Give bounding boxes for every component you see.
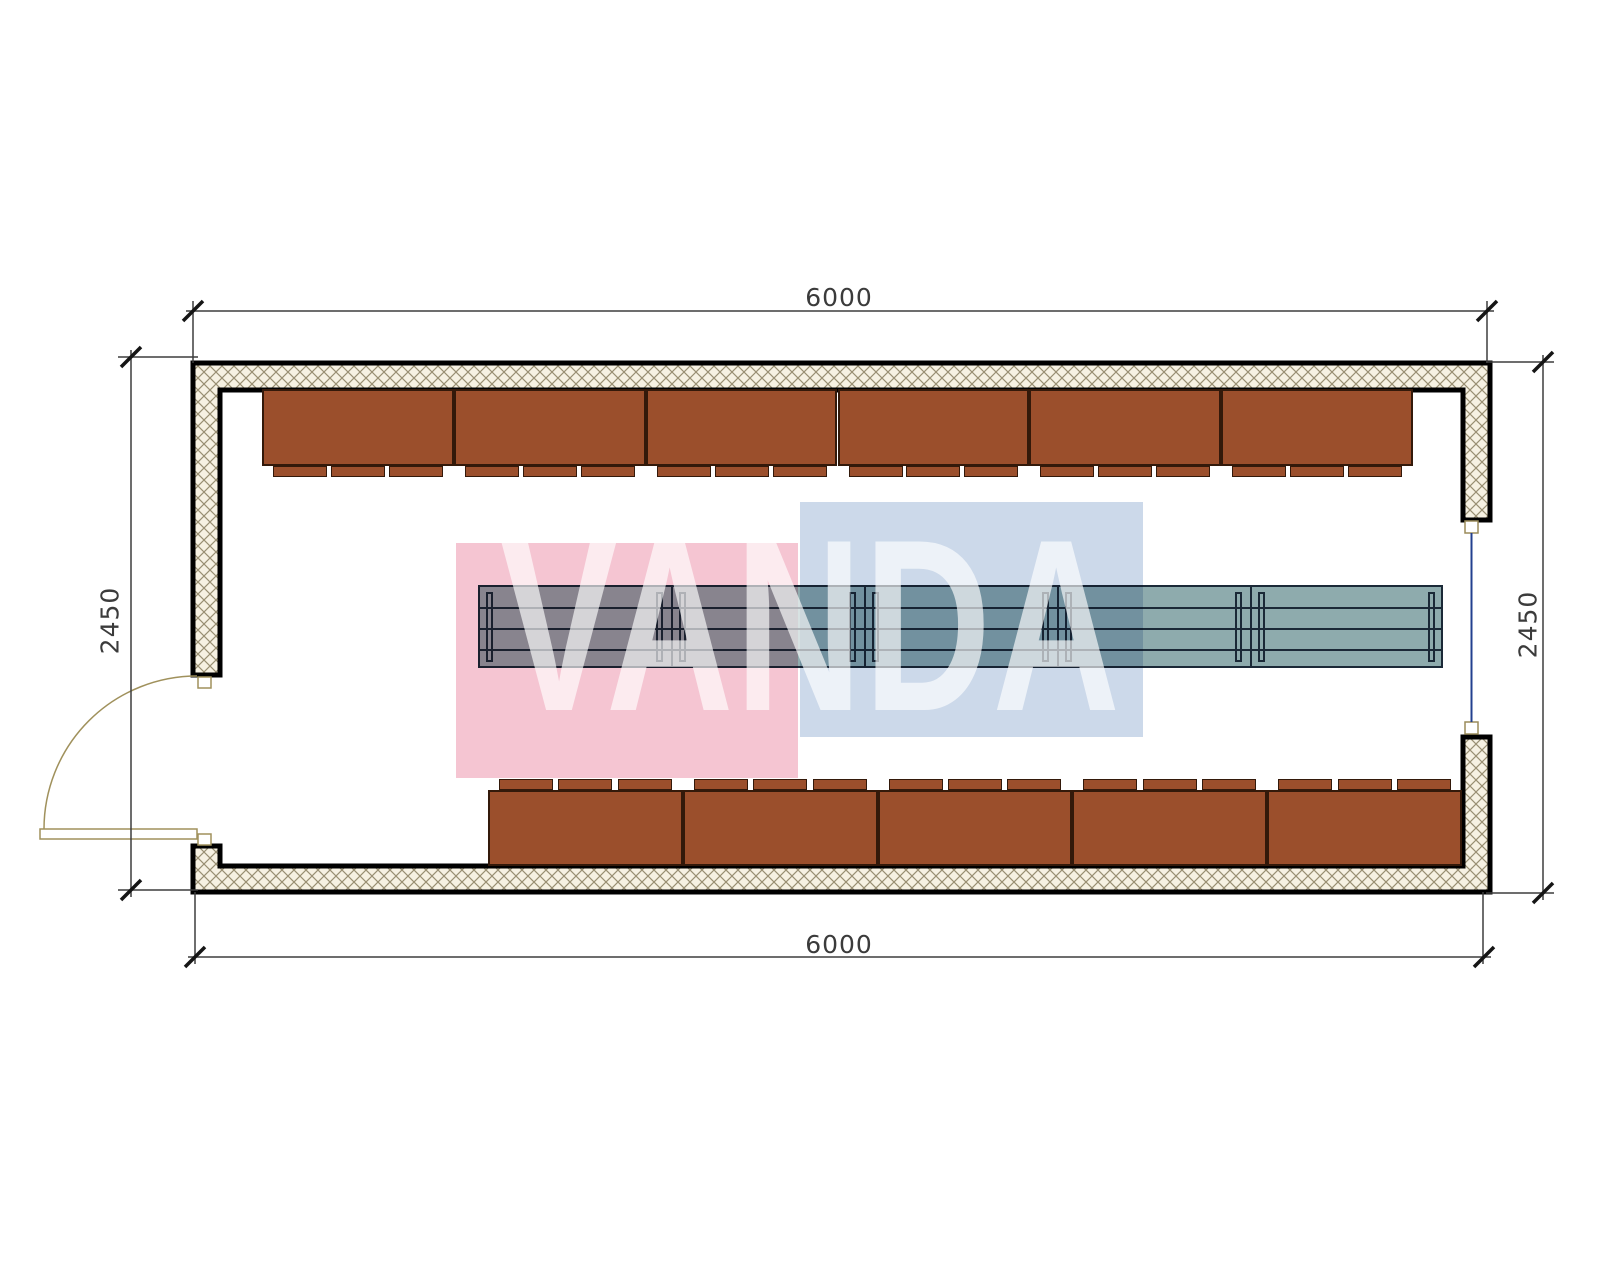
- window-jamb-top: [1465, 521, 1478, 533]
- bench-tab: [715, 466, 769, 477]
- bench-tab: [813, 779, 867, 790]
- bench-tab: [1278, 779, 1332, 790]
- bench-tab: [558, 779, 612, 790]
- table-module-divider: [1250, 585, 1252, 668]
- bench-tab: [465, 466, 519, 477]
- bench: [1072, 790, 1267, 866]
- bench-tab: [523, 466, 577, 477]
- table-leg: [1258, 592, 1265, 662]
- table-leg: [1428, 592, 1435, 662]
- bench-tab: [889, 779, 943, 790]
- bench-tab: [1232, 466, 1286, 477]
- bench-tab: [1156, 466, 1210, 477]
- bench-tab: [1338, 779, 1392, 790]
- bench-tab: [773, 466, 827, 477]
- bench-tab: [581, 466, 635, 477]
- floor-plan-canvas: 6000 6000 2450 2450 VANDA: [0, 0, 1600, 1280]
- bench-tab: [1083, 779, 1137, 790]
- bench: [262, 389, 454, 466]
- bench-tab: [948, 779, 1002, 790]
- bench: [878, 790, 1073, 866]
- bench-tab: [694, 779, 748, 790]
- bench-tab: [1098, 466, 1152, 477]
- bench: [683, 790, 878, 866]
- door-jamb-bottom: [198, 834, 211, 845]
- bench: [1221, 389, 1413, 466]
- bench-tab: [753, 779, 807, 790]
- door-jamb-top: [198, 677, 211, 688]
- bench-tab: [1290, 466, 1344, 477]
- watermark-text: VANDA: [500, 503, 1121, 748]
- bench-tab: [906, 466, 960, 477]
- dimension-label-left: 2450: [96, 571, 125, 671]
- bench-tab: [1040, 466, 1094, 477]
- bench-tab: [1348, 466, 1402, 477]
- bench-tab: [1007, 779, 1061, 790]
- bench-tab: [1143, 779, 1197, 790]
- dimension-label-top: 6000: [789, 283, 889, 312]
- bench-tab: [1397, 779, 1451, 790]
- dimension-label-bottom: 6000: [789, 930, 889, 959]
- dimension-label-right: 2450: [1514, 575, 1543, 675]
- window-jamb-bottom: [1465, 722, 1478, 734]
- bench-tab: [273, 466, 327, 477]
- bench: [454, 389, 646, 466]
- bench-tab: [1202, 779, 1256, 790]
- bench: [838, 389, 1030, 466]
- bench-tab: [499, 779, 553, 790]
- bench-tab: [331, 466, 385, 477]
- bench: [1029, 389, 1221, 466]
- bench: [1267, 790, 1462, 866]
- bench-tab: [964, 466, 1018, 477]
- bench-tab: [657, 466, 711, 477]
- door-leaf: [40, 829, 197, 839]
- bench-tab: [849, 466, 903, 477]
- bench: [488, 790, 683, 866]
- table-leg: [1235, 592, 1242, 662]
- bench-tab: [389, 466, 443, 477]
- door-swing-arc: [44, 676, 197, 829]
- bench-tab: [618, 779, 672, 790]
- bench: [646, 389, 838, 466]
